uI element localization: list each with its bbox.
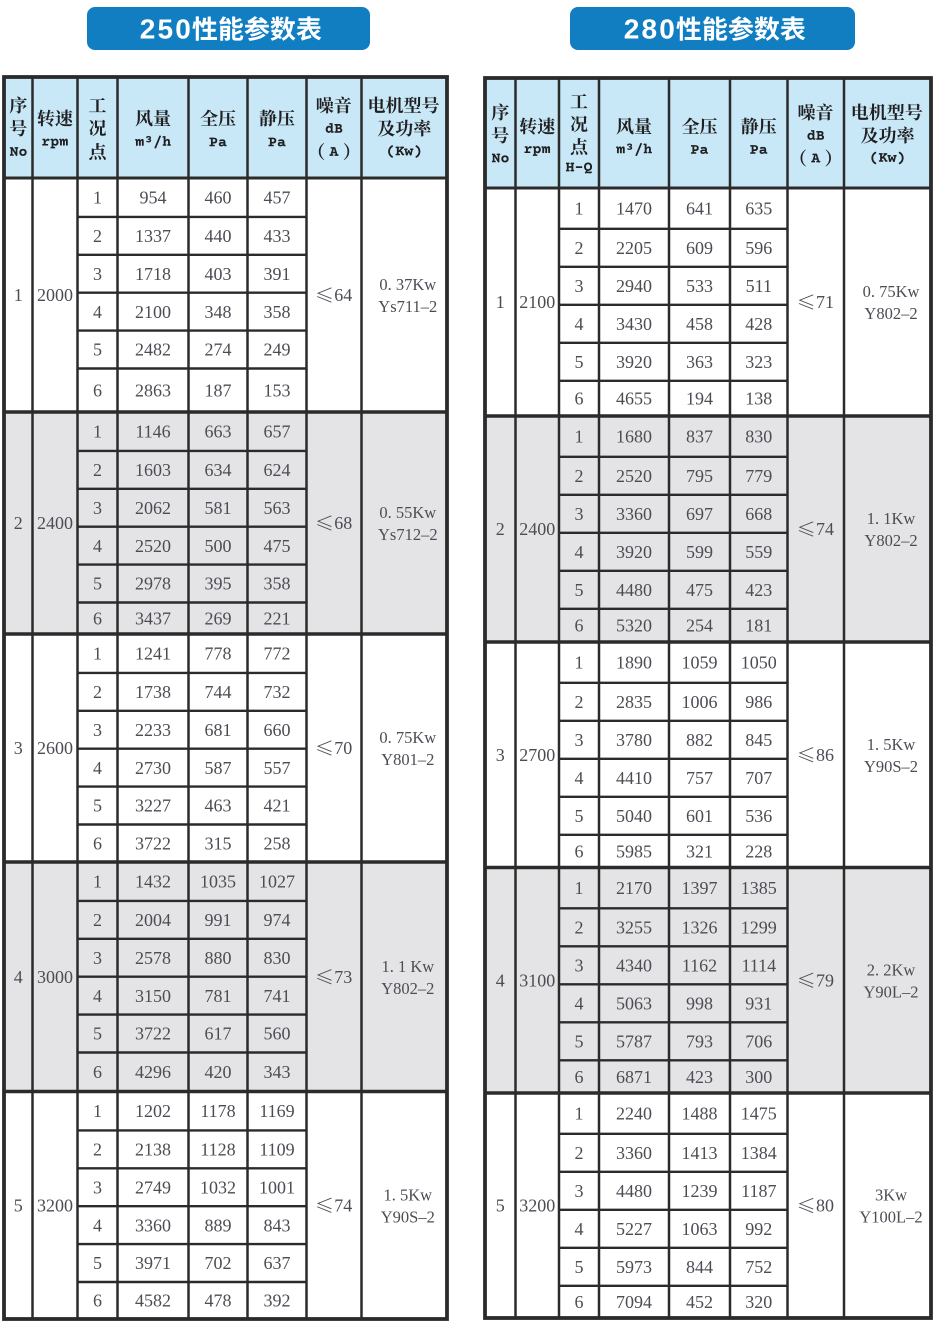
svg-text:1385: 1385 (741, 878, 777, 898)
svg-text:228: 228 (745, 841, 772, 861)
svg-text:2004: 2004 (135, 910, 171, 930)
svg-text:830: 830 (745, 427, 772, 447)
svg-text:3: 3 (93, 498, 102, 518)
svg-text:6871: 6871 (616, 1067, 652, 1087)
svg-text:2. 2Kw: 2. 2Kw (867, 960, 916, 979)
svg-text:6: 6 (575, 1067, 584, 1087)
svg-text:1: 1 (93, 1101, 102, 1121)
svg-text:954: 954 (140, 188, 167, 208)
svg-text:2233: 2233 (135, 720, 171, 740)
svg-text:2062: 2062 (135, 498, 171, 518)
svg-text:2: 2 (93, 226, 102, 246)
svg-text:392: 392 (264, 1291, 291, 1311)
svg-text:4296: 4296 (135, 1062, 171, 1082)
svg-text:1035: 1035 (200, 872, 236, 892)
svg-text:423: 423 (686, 1067, 713, 1087)
svg-text:250: 250 (140, 13, 193, 44)
svg-text:660: 660 (264, 720, 291, 740)
svg-text:2138: 2138 (135, 1140, 171, 1160)
svg-text:358: 358 (264, 574, 291, 594)
svg-text:1050: 1050 (741, 653, 777, 673)
svg-text:3: 3 (93, 264, 102, 284)
svg-text:668: 668 (745, 504, 772, 524)
svg-text:358: 358 (264, 302, 291, 322)
svg-text:702: 702 (205, 1253, 232, 1273)
svg-text:2400: 2400 (37, 513, 73, 533)
svg-text:741: 741 (264, 986, 291, 1006)
svg-text:596: 596 (745, 238, 772, 258)
svg-text:1063: 1063 (682, 1219, 718, 1239)
svg-text:986: 986 (745, 692, 772, 712)
svg-text:Y100L–2: Y100L–2 (859, 1208, 922, 1227)
svg-text:707: 707 (745, 768, 772, 788)
svg-text:1890: 1890 (616, 653, 652, 673)
svg-text:4: 4 (575, 1219, 584, 1239)
svg-text:1114: 1114 (741, 956, 776, 976)
svg-text:5: 5 (575, 352, 584, 372)
svg-text:511: 511 (746, 276, 772, 296)
svg-text:559: 559 (745, 542, 772, 562)
svg-text:634: 634 (205, 460, 232, 480)
svg-text:5: 5 (14, 1195, 23, 1215)
svg-text:2940: 2940 (616, 276, 652, 296)
svg-text:421: 421 (264, 796, 291, 816)
svg-text:3360: 3360 (616, 1143, 652, 1163)
svg-text:5063: 5063 (616, 994, 652, 1014)
svg-text:1413: 1413 (682, 1143, 718, 1163)
svg-text:1718: 1718 (135, 264, 171, 284)
svg-text:1: 1 (93, 188, 102, 208)
svg-text:Y802–2: Y802–2 (864, 304, 917, 323)
svg-text:681: 681 (205, 720, 232, 740)
svg-text:440: 440 (205, 226, 232, 246)
svg-text:187: 187 (205, 380, 232, 400)
svg-text:452: 452 (686, 1292, 713, 1312)
svg-text:3000: 3000 (37, 967, 73, 987)
svg-text:138: 138 (745, 389, 772, 409)
svg-text:323: 323 (745, 352, 772, 372)
svg-text:258: 258 (264, 833, 291, 853)
svg-text:3360: 3360 (135, 1215, 171, 1235)
svg-text:3: 3 (496, 745, 505, 765)
svg-text:1. 5Kw: 1. 5Kw (384, 1185, 433, 1204)
svg-text:1: 1 (575, 1104, 584, 1124)
svg-text:0. 55Kw: 0. 55Kw (379, 503, 436, 522)
svg-text:348: 348 (205, 302, 232, 322)
svg-text:2: 2 (93, 910, 102, 930)
svg-text:4: 4 (93, 1215, 102, 1235)
svg-text:1178: 1178 (200, 1101, 235, 1121)
svg-text:3Kw: 3Kw (875, 1186, 907, 1205)
svg-text:563: 563 (264, 498, 291, 518)
svg-text:1059: 1059 (682, 653, 718, 673)
svg-text:6: 6 (575, 841, 584, 861)
svg-text:992: 992 (745, 1219, 772, 1239)
svg-text:1: 1 (93, 872, 102, 892)
svg-text:637: 637 (264, 1253, 291, 1273)
svg-text:320: 320 (745, 1292, 772, 1312)
svg-text:343: 343 (264, 1062, 291, 1082)
svg-text:6: 6 (93, 1062, 102, 1082)
svg-text:403: 403 (205, 264, 232, 284)
svg-text:882: 882 (686, 730, 713, 750)
svg-text:744: 744 (205, 682, 232, 702)
svg-text:475: 475 (264, 536, 291, 556)
svg-text:423: 423 (745, 580, 772, 600)
svg-text:5: 5 (575, 1032, 584, 1052)
svg-text:3437: 3437 (135, 608, 171, 628)
svg-text:599: 599 (686, 542, 713, 562)
svg-text:1488: 1488 (682, 1104, 718, 1124)
svg-text:3: 3 (93, 720, 102, 740)
svg-text:1032: 1032 (200, 1177, 236, 1197)
svg-text:5320: 5320 (616, 616, 652, 636)
svg-text:395: 395 (205, 574, 232, 594)
svg-text:1738: 1738 (135, 682, 171, 702)
svg-text:1397: 1397 (682, 878, 718, 898)
svg-text:315: 315 (205, 833, 232, 853)
svg-text:635: 635 (745, 199, 772, 219)
svg-text:837: 837 (686, 427, 713, 447)
svg-text:6: 6 (575, 616, 584, 636)
svg-text:5: 5 (575, 580, 584, 600)
svg-text:3971: 3971 (135, 1253, 171, 1273)
svg-text:221: 221 (264, 608, 291, 628)
svg-text:587: 587 (205, 758, 232, 778)
svg-text:1202: 1202 (135, 1101, 171, 1121)
svg-text:4: 4 (93, 986, 102, 1006)
svg-text:2205: 2205 (616, 238, 652, 258)
svg-text:1603: 1603 (135, 460, 171, 480)
svg-text:5040: 5040 (616, 806, 652, 826)
svg-text:2578: 2578 (135, 948, 171, 968)
svg-text:931: 931 (745, 994, 772, 1014)
svg-text:889: 889 (205, 1215, 232, 1235)
svg-text:3722: 3722 (135, 833, 171, 853)
svg-text:2: 2 (575, 1143, 584, 1163)
svg-text:1: 1 (93, 644, 102, 664)
svg-text:194: 194 (686, 389, 713, 409)
svg-text:536: 536 (745, 806, 772, 826)
svg-text:79: 79 (816, 970, 834, 990)
svg-text:5: 5 (93, 574, 102, 594)
svg-text:64: 64 (334, 285, 352, 305)
svg-text:697: 697 (686, 504, 713, 524)
svg-text:1337: 1337 (135, 226, 171, 246)
svg-text:1299: 1299 (741, 918, 777, 938)
svg-text:3200: 3200 (519, 1196, 555, 1216)
svg-text:880: 880 (205, 948, 232, 968)
svg-text:3227: 3227 (135, 796, 171, 816)
svg-text:2600: 2600 (37, 738, 73, 758)
svg-text:793: 793 (686, 1032, 713, 1052)
svg-text:624: 624 (264, 460, 291, 480)
svg-text:1109: 1109 (259, 1140, 294, 1160)
svg-text:2400: 2400 (519, 519, 555, 539)
svg-text:5985: 5985 (616, 841, 652, 861)
svg-text:460: 460 (205, 188, 232, 208)
svg-text:3: 3 (93, 1177, 102, 1197)
svg-text:3100: 3100 (519, 970, 555, 990)
svg-text:3780: 3780 (616, 730, 652, 750)
svg-text:3920: 3920 (616, 542, 652, 562)
svg-text:6: 6 (93, 833, 102, 853)
svg-text:2: 2 (575, 692, 584, 712)
svg-text:2978: 2978 (135, 574, 171, 594)
svg-text:4: 4 (575, 768, 584, 788)
svg-text:1169: 1169 (259, 1101, 294, 1121)
svg-text:4: 4 (496, 970, 505, 990)
svg-text:1470: 1470 (616, 199, 652, 219)
svg-text:974: 974 (264, 910, 291, 930)
svg-text:732: 732 (264, 682, 291, 702)
svg-text:1. 5Kw: 1. 5Kw (867, 735, 916, 754)
svg-text:73: 73 (334, 967, 352, 987)
svg-text:80: 80 (816, 1196, 834, 1216)
svg-text:1241: 1241 (135, 644, 171, 664)
svg-text:1. 1Kw: 1. 1Kw (867, 509, 916, 528)
svg-text:5787: 5787 (616, 1032, 652, 1052)
svg-text:2100: 2100 (135, 302, 171, 322)
svg-text:3: 3 (575, 504, 584, 524)
svg-text:581: 581 (205, 498, 232, 518)
svg-text:1: 1 (575, 199, 584, 219)
svg-text:363: 363 (686, 352, 713, 372)
svg-text:428: 428 (745, 314, 772, 334)
svg-text:Ys712–2: Ys712–2 (378, 525, 438, 544)
svg-text:433: 433 (264, 226, 291, 246)
svg-text:Y90S–2: Y90S–2 (381, 1207, 435, 1226)
svg-text:3200: 3200 (37, 1195, 73, 1215)
svg-text:3: 3 (14, 738, 23, 758)
svg-text:Ys711–2: Ys711–2 (378, 297, 437, 316)
svg-text:153: 153 (264, 380, 291, 400)
svg-text:4: 4 (14, 967, 23, 987)
svg-text:0. 37Kw: 0. 37Kw (379, 275, 436, 294)
svg-text:2: 2 (14, 513, 23, 533)
svg-text:3150: 3150 (135, 986, 171, 1006)
svg-text:2240: 2240 (616, 1104, 652, 1124)
svg-text:4340: 4340 (616, 956, 652, 976)
svg-text:4582: 4582 (135, 1291, 171, 1311)
svg-text:2: 2 (575, 238, 584, 258)
svg-text:1326: 1326 (682, 918, 718, 938)
svg-text:71: 71 (816, 292, 834, 312)
svg-text:1680: 1680 (616, 427, 652, 447)
svg-text:998: 998 (686, 994, 713, 1014)
svg-text:1: 1 (575, 878, 584, 898)
svg-text:Y802–2: Y802–2 (864, 531, 917, 550)
svg-text:4: 4 (575, 542, 584, 562)
svg-text:2482: 2482 (135, 340, 171, 360)
svg-text:4: 4 (575, 994, 584, 1014)
svg-text:830: 830 (264, 948, 291, 968)
svg-text:795: 795 (686, 466, 713, 486)
svg-text:7094: 7094 (616, 1292, 652, 1312)
svg-text:2: 2 (496, 519, 505, 539)
svg-text:533: 533 (686, 276, 713, 296)
svg-text:0. 75Kw: 0. 75Kw (379, 728, 436, 747)
svg-text:463: 463 (205, 796, 232, 816)
svg-text:1187: 1187 (741, 1181, 776, 1201)
svg-text:1162: 1162 (682, 956, 717, 976)
svg-text:1384: 1384 (741, 1143, 777, 1163)
svg-text:2000: 2000 (37, 285, 73, 305)
svg-text:6: 6 (575, 1292, 584, 1312)
svg-text:779: 779 (745, 466, 772, 486)
svg-text:254: 254 (686, 616, 713, 636)
svg-text:86: 86 (816, 745, 834, 765)
svg-text:663: 663 (205, 422, 232, 442)
svg-text:4655: 4655 (616, 389, 652, 409)
svg-text:2700: 2700 (519, 745, 555, 765)
svg-text:657: 657 (264, 422, 291, 442)
svg-text:6: 6 (93, 1291, 102, 1311)
svg-text:5: 5 (575, 1257, 584, 1277)
svg-text:1. 1 Kw: 1. 1 Kw (381, 957, 434, 976)
svg-text:3430: 3430 (616, 314, 652, 334)
svg-text:5: 5 (496, 1196, 505, 1216)
svg-text:2749: 2749 (135, 1177, 171, 1197)
svg-text:274: 274 (205, 340, 232, 360)
svg-text:1027: 1027 (259, 872, 295, 892)
svg-text:781: 781 (205, 986, 232, 1006)
svg-text:6: 6 (93, 608, 102, 628)
svg-text:4: 4 (93, 536, 102, 556)
svg-text:3722: 3722 (135, 1024, 171, 1044)
svg-text:5: 5 (575, 806, 584, 826)
svg-text:1: 1 (14, 285, 23, 305)
svg-text:2: 2 (93, 682, 102, 702)
svg-text:2: 2 (93, 460, 102, 480)
svg-text:3360: 3360 (616, 504, 652, 524)
svg-text:3: 3 (575, 276, 584, 296)
svg-text:Y90S–2: Y90S–2 (864, 757, 918, 776)
svg-text:641: 641 (686, 199, 713, 219)
svg-text:321: 321 (686, 841, 713, 861)
svg-text:Y90L–2: Y90L–2 (864, 982, 919, 1001)
svg-text:2835: 2835 (616, 692, 652, 712)
svg-text:4410: 4410 (616, 768, 652, 788)
svg-text:1: 1 (575, 653, 584, 673)
svg-text:1146: 1146 (135, 422, 170, 442)
svg-text:3: 3 (575, 1181, 584, 1201)
svg-text:4480: 4480 (616, 580, 652, 600)
svg-text:3: 3 (575, 730, 584, 750)
svg-text:5: 5 (93, 796, 102, 816)
svg-text:2170: 2170 (616, 878, 652, 898)
svg-text:74: 74 (334, 1195, 352, 1215)
svg-text:2: 2 (575, 918, 584, 938)
svg-text:70: 70 (334, 738, 352, 758)
svg-text:5: 5 (93, 340, 102, 360)
svg-text:5973: 5973 (616, 1257, 652, 1277)
svg-text:3: 3 (93, 948, 102, 968)
svg-text:1239: 1239 (682, 1181, 718, 1201)
svg-text:74: 74 (816, 519, 834, 539)
svg-text:1475: 1475 (741, 1104, 777, 1124)
svg-text:391: 391 (264, 264, 291, 284)
svg-text:772: 772 (264, 644, 291, 664)
svg-text:617: 617 (205, 1024, 232, 1044)
svg-text:1432: 1432 (135, 872, 171, 892)
svg-text:3: 3 (575, 956, 584, 976)
svg-text:0. 75Kw: 0. 75Kw (863, 282, 920, 301)
svg-text:2100: 2100 (519, 292, 555, 312)
svg-text:6: 6 (575, 389, 584, 409)
svg-text:752: 752 (745, 1257, 772, 1277)
svg-text:991: 991 (205, 910, 232, 930)
svg-text:778: 778 (205, 644, 232, 664)
svg-text:5: 5 (93, 1024, 102, 1044)
svg-text:2520: 2520 (135, 536, 171, 556)
svg-text:2863: 2863 (135, 380, 171, 400)
svg-text:557: 557 (264, 758, 291, 778)
svg-text:2520: 2520 (616, 466, 652, 486)
svg-text:609: 609 (686, 238, 713, 258)
svg-text:457: 457 (264, 188, 291, 208)
svg-text:4: 4 (575, 314, 584, 334)
svg-text:601: 601 (686, 806, 713, 826)
svg-text:478: 478 (205, 1291, 232, 1311)
svg-text:1: 1 (575, 427, 584, 447)
svg-text:757: 757 (686, 768, 713, 788)
svg-text:560: 560 (264, 1024, 291, 1044)
svg-text:4: 4 (93, 302, 102, 322)
svg-text:4: 4 (93, 758, 102, 778)
svg-text:300: 300 (745, 1067, 772, 1087)
svg-text:845: 845 (745, 730, 772, 750)
svg-text:844: 844 (686, 1257, 713, 1277)
svg-text:2: 2 (93, 1140, 102, 1160)
svg-text:249: 249 (264, 340, 291, 360)
svg-text:475: 475 (686, 580, 713, 600)
svg-text:3920: 3920 (616, 352, 652, 372)
svg-text:1001: 1001 (259, 1177, 295, 1197)
svg-text:1006: 1006 (682, 692, 718, 712)
svg-text:269: 269 (205, 608, 232, 628)
svg-text:Y801–2: Y801–2 (381, 750, 434, 769)
svg-text:706: 706 (745, 1032, 772, 1052)
svg-text:500: 500 (205, 536, 232, 556)
svg-text:843: 843 (264, 1215, 291, 1235)
svg-text:181: 181 (745, 616, 772, 636)
svg-text:Y802–2: Y802–2 (381, 979, 434, 998)
svg-text:68: 68 (334, 513, 352, 533)
svg-text:3255: 3255 (616, 918, 652, 938)
svg-text:5: 5 (93, 1253, 102, 1273)
svg-text:2730: 2730 (135, 758, 171, 778)
svg-text:280: 280 (624, 13, 677, 44)
svg-text:420: 420 (205, 1062, 232, 1082)
svg-text:6: 6 (93, 380, 102, 400)
svg-text:4480: 4480 (616, 1181, 652, 1201)
svg-text:5227: 5227 (616, 1219, 652, 1239)
svg-text:2: 2 (575, 466, 584, 486)
svg-text:1128: 1128 (200, 1140, 235, 1160)
svg-text:1: 1 (496, 292, 505, 312)
svg-text:1: 1 (93, 422, 102, 442)
svg-text:458: 458 (686, 314, 713, 334)
